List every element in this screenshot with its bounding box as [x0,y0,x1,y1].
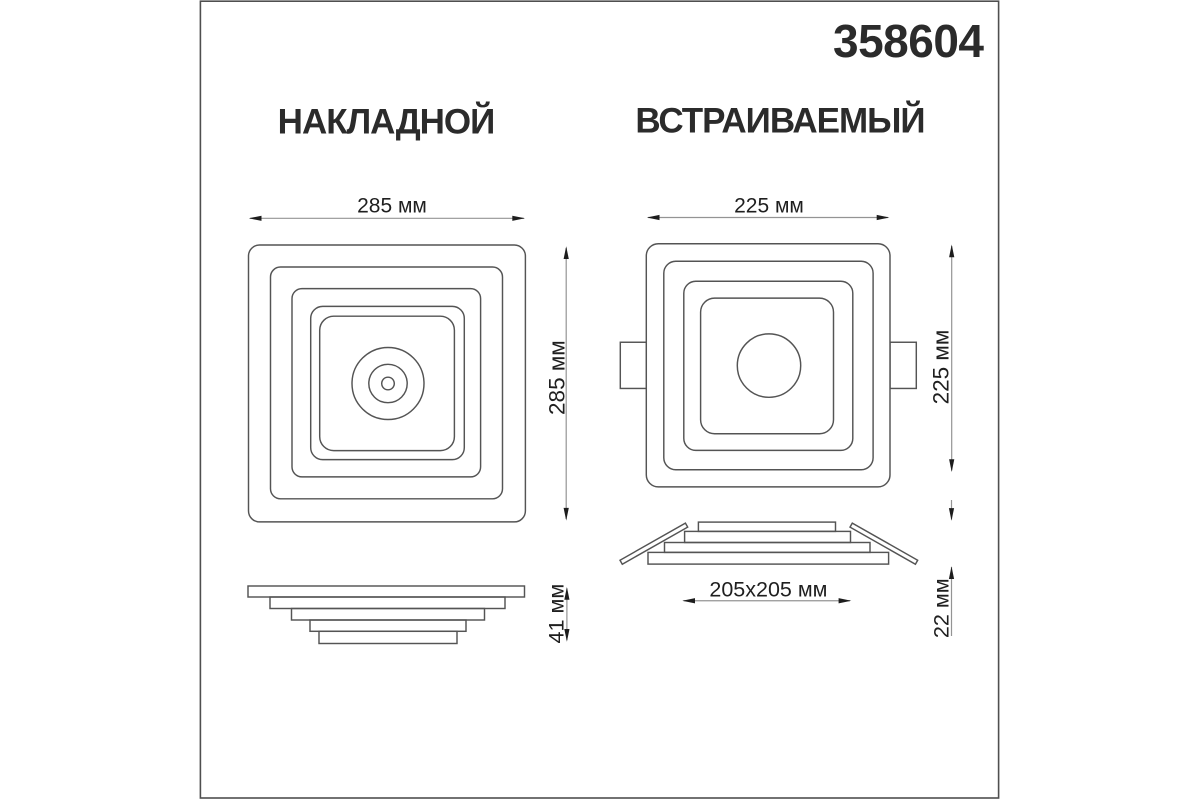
svg-text:22 мм: 22 мм [929,578,954,638]
svg-text:225 мм: 225 мм [929,330,954,405]
svg-text:225 мм: 225 мм [734,195,804,218]
svg-text:285 мм: 285 мм [357,195,427,218]
svg-text:205x205 мм: 205x205 мм [709,577,827,601]
svg-text:НАКЛАДНОЙ: НАКЛАДНОЙ [278,102,495,142]
svg-text:285 мм: 285 мм [545,340,570,415]
svg-text:ВСТРАИВАЕМЫЙ: ВСТРАИВАЕМЫЙ [635,101,924,141]
svg-text:41 мм: 41 мм [544,584,569,644]
svg-text:358604: 358604 [833,15,984,67]
